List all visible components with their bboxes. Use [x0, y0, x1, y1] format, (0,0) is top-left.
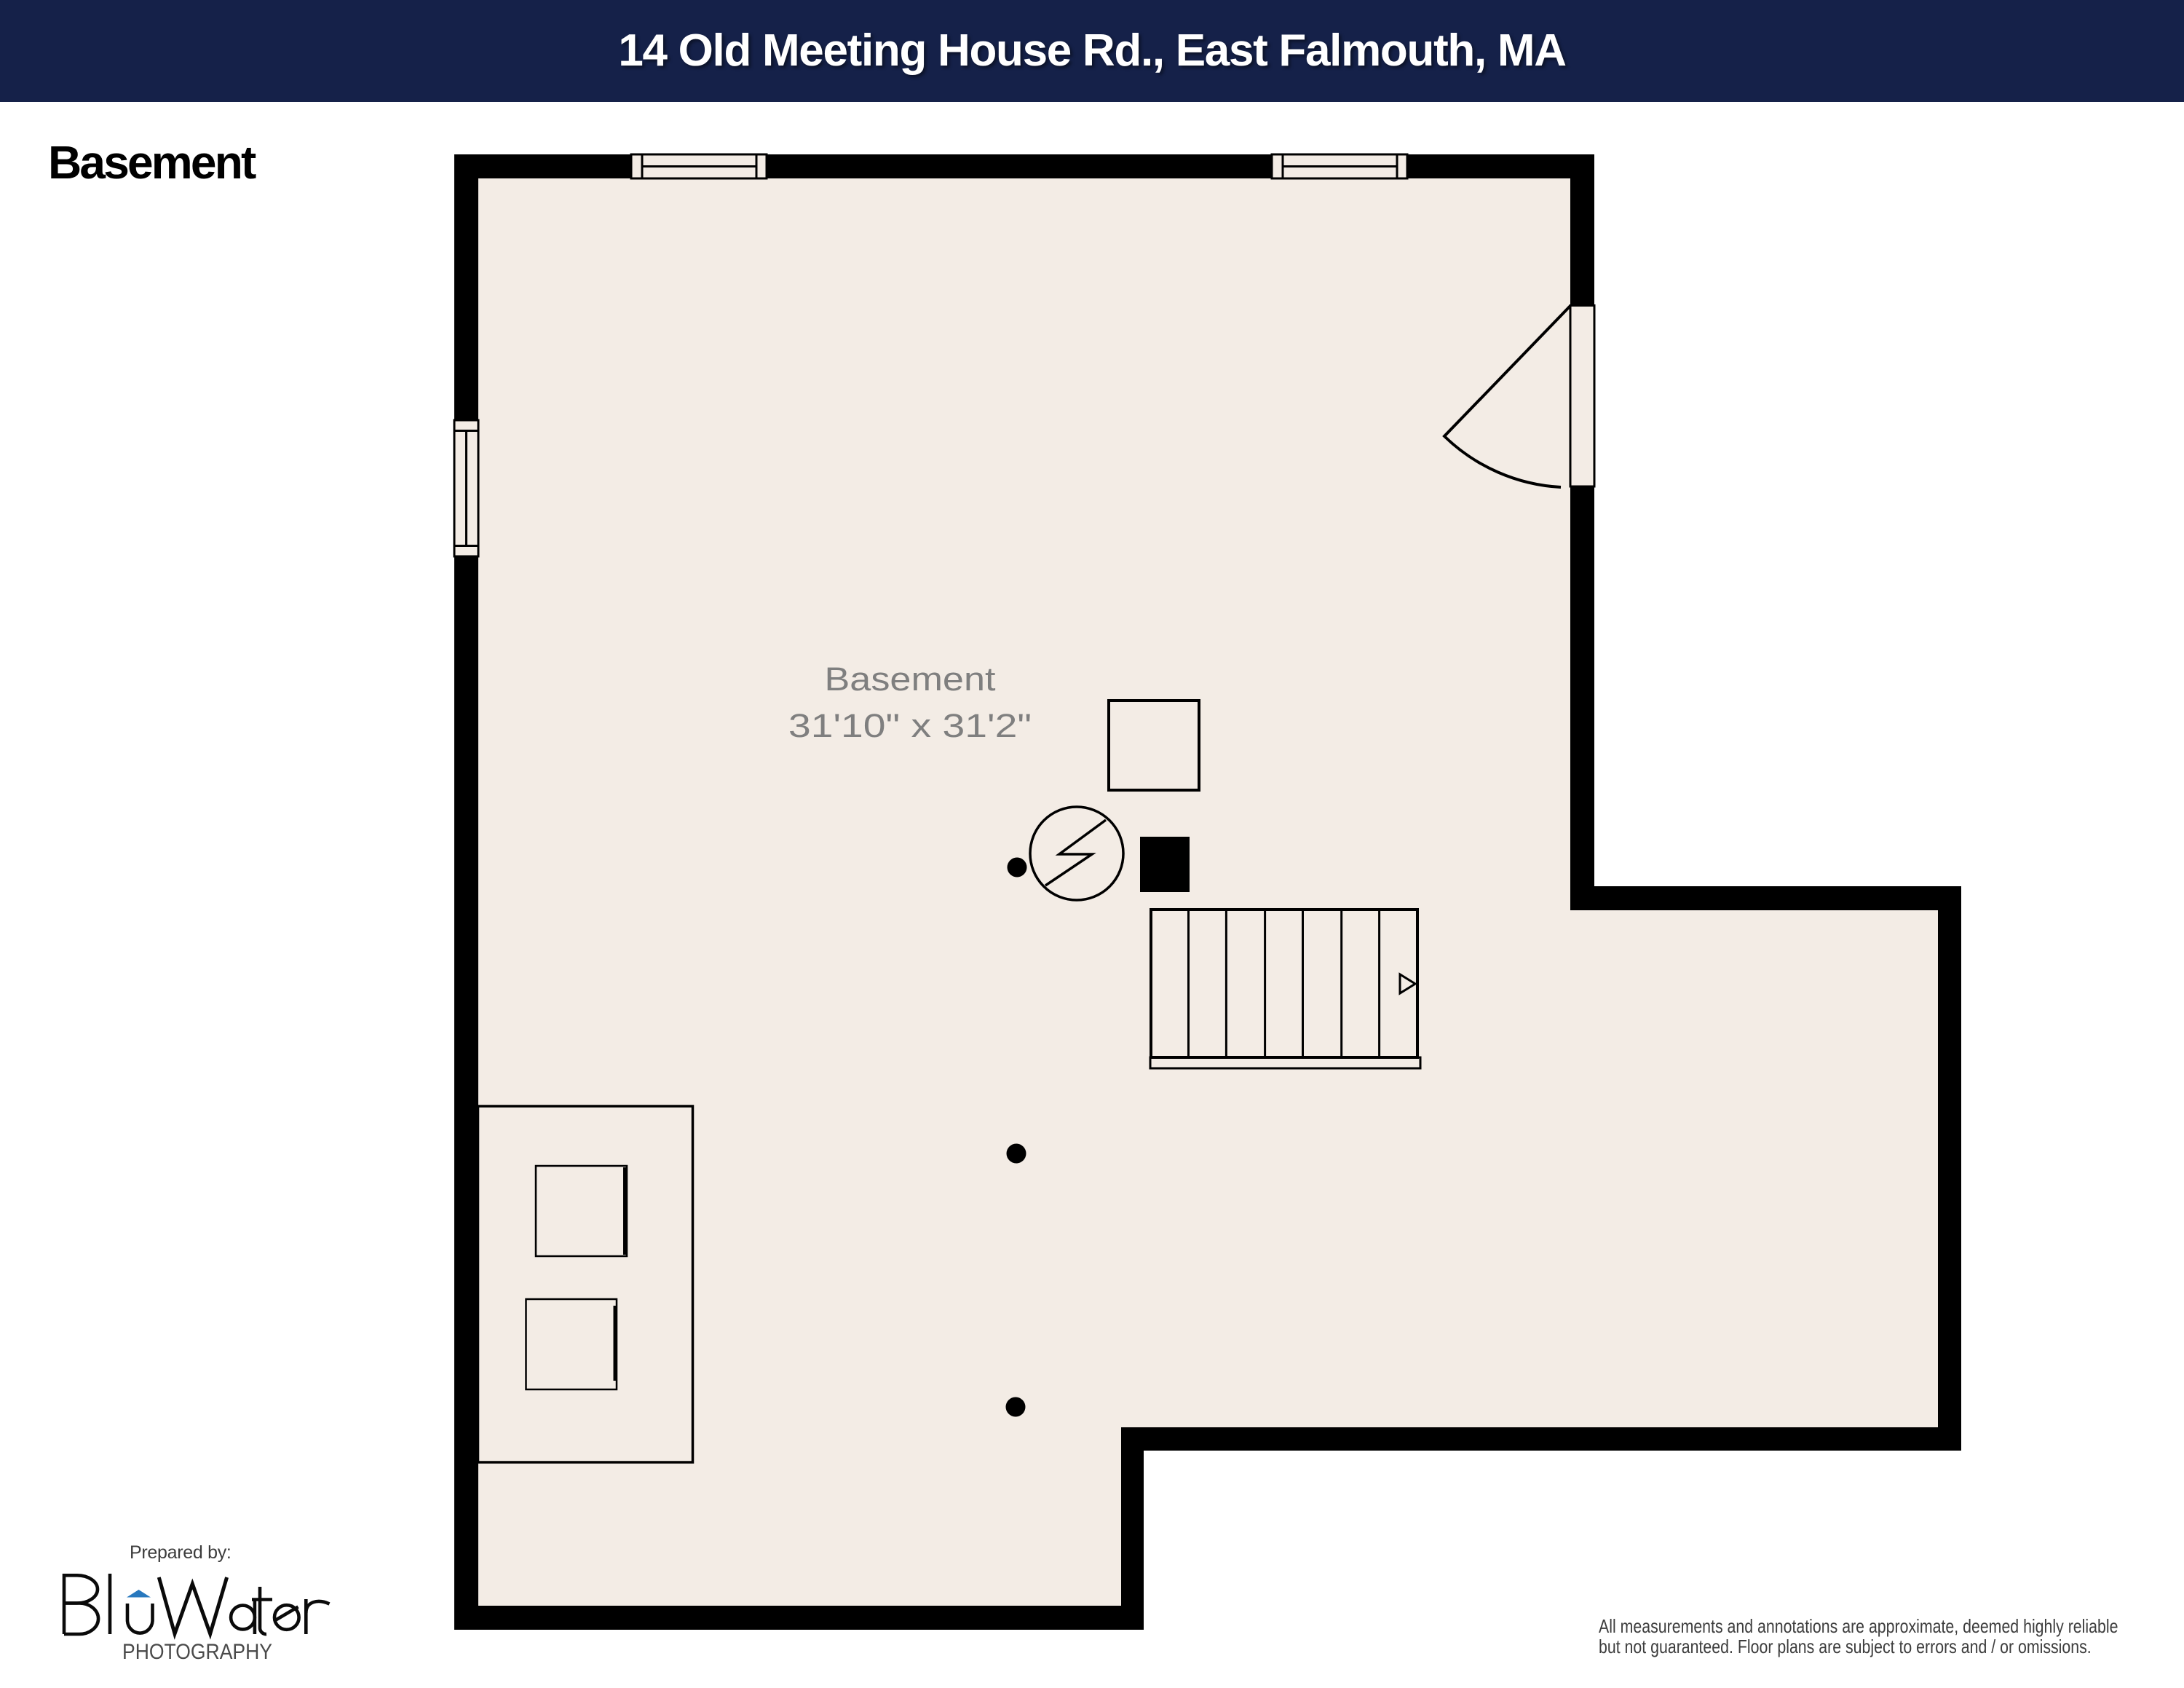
svg-text:Basement: Basement [825, 660, 997, 698]
svg-text:31'10" x 31'2": 31'10" x 31'2" [788, 707, 1032, 744]
svg-text:PHOTOGRAPHY: PHOTOGRAPHY [122, 1640, 272, 1664]
